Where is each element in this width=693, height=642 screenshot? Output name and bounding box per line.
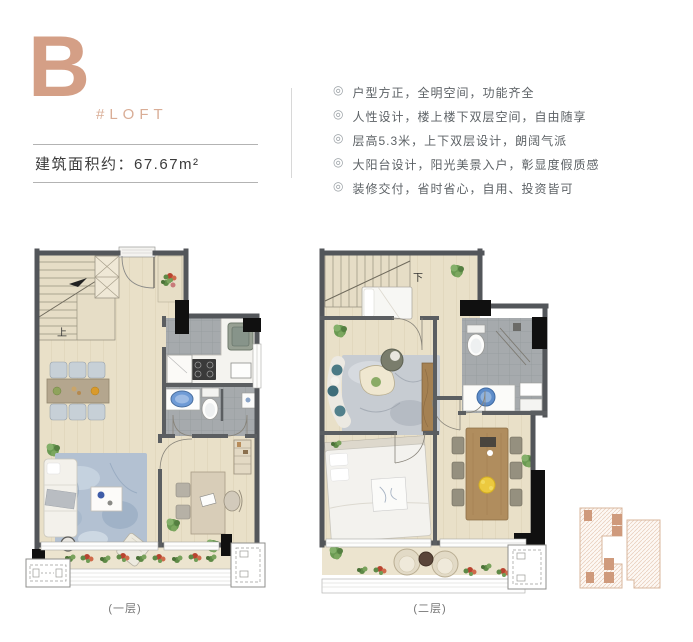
column [531,470,545,538]
towel-shelf [520,399,542,411]
feature-item: ◎ 层高5.3米，上下双层设计，朗阔气派 [333,132,600,149]
column [175,300,189,334]
ac-platform-right [508,545,546,589]
column [221,534,232,556]
unit-letter: B [28,24,90,110]
feature-item: ◎ 大阳台设计，阳光美景入户，彰显度假质感 [333,156,600,173]
key-plan-right-wing [627,520,660,588]
loft-tag: #LOFT [96,106,168,123]
feature-item: ◎ 人性设计，楼上楼下双层空间，自由随享 [333,108,600,125]
wicker-chair [432,551,458,577]
feature-text: 大阳台设计，阳光美景入户，彰显度假质感 [352,156,599,173]
bullseye-icon: ◎ [333,156,344,169]
second-floor-caption: (二层) [330,600,530,616]
highlighted-unit [612,526,622,536]
bullseye-icon: ◎ [333,180,344,193]
wicker-chair [394,549,420,575]
first-floor-plan: 上 [25,243,267,595]
feature-text: 人性设计，楼上楼下双层空间，自由随享 [352,108,586,125]
side-table [419,552,433,566]
daybed [362,287,412,319]
toilet [467,325,485,356]
entry-console [158,256,182,302]
bookshelf [234,440,251,474]
feature-text: 装修交付，省时省心，自用、投资皆可 [352,180,573,197]
windows [326,539,526,547]
building-key-plan [570,492,670,596]
highlighted-unit [612,514,622,525]
coffee-table [91,487,122,511]
stove [192,359,216,380]
ac-platform-right [231,543,265,587]
sofa [44,459,77,537]
first-floor-caption: (一层) [25,600,225,616]
round-chair [381,349,403,371]
highlighted-unit [584,510,592,521]
long-table [466,428,508,520]
dining-set [47,362,109,420]
feature-text: 层高5.3米，上下双层设计，朗阔气派 [352,132,567,149]
shower-head [513,323,521,331]
feature-list: ◎ 户型方正，全明空间，功能齐全 ◎ 人性设计，楼上楼下双层空间，自由随享 ◎ … [333,84,600,204]
fridge [167,355,192,383]
column [243,318,261,332]
stair-direction-label: 下 [413,273,423,284]
bullseye-icon: ◎ [333,108,344,121]
tv-cabinet [422,363,434,431]
kitchen-appliance [231,363,251,378]
balcony-railing [322,579,525,593]
feature-item: ◎ 户型方正，全明空间，功能齐全 [333,84,600,101]
feature-text: 户型方正，全明空间，功能齐全 [352,84,534,101]
bedroom [324,436,431,543]
second-floor-plan: 下 [300,243,550,595]
floorplan-sheet: B #LOFT 建筑面积约：67.67m² ◎ 户型方正，全明空间，功能齐全 ◎… [0,0,693,642]
ac-platform-left [26,559,70,587]
stair-direction-label: 上 [57,327,67,339]
area-label: 建筑面积约：67.67m² [33,144,258,183]
vanity [463,385,515,411]
towel-shelf [520,383,542,396]
bullseye-icon: ◎ [333,132,344,145]
highlighted-unit [604,558,614,570]
toilet [202,388,219,420]
column [460,300,491,316]
bullseye-icon: ◎ [333,84,344,97]
highlighted-unit [586,572,594,583]
feature-item: ◎ 装修交付，省时省心，自用、投资皆可 [333,180,600,197]
entry-wardrobe [95,256,119,298]
column [532,317,547,349]
highlighted-unit [604,572,614,583]
vertical-divider [291,88,292,178]
